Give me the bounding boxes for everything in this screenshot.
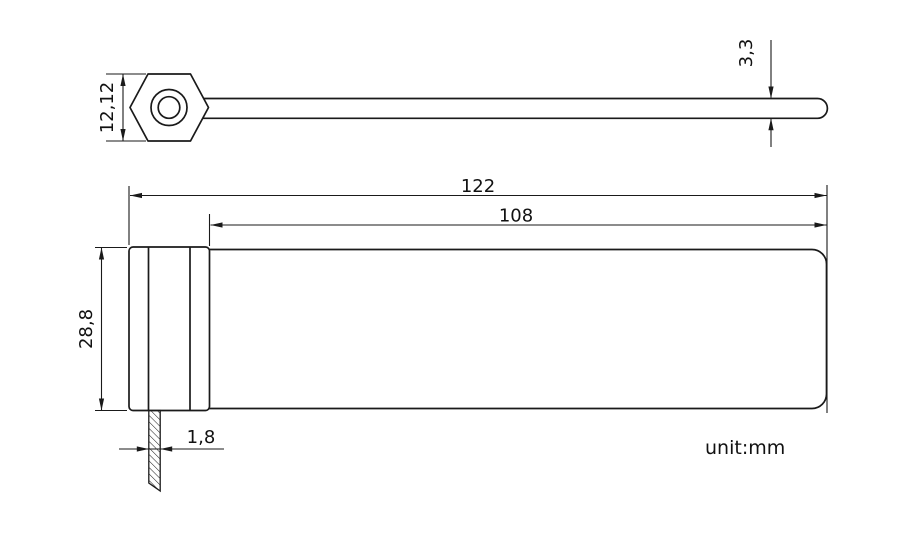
dim-strap-length: 108 xyxy=(210,206,827,247)
arrowhead-up-icon xyxy=(120,74,125,86)
strap-profile xyxy=(203,99,827,119)
arrowhead-right-icon xyxy=(815,193,827,198)
arrowhead-down-icon xyxy=(768,87,773,99)
arrowhead-up-icon xyxy=(99,248,104,260)
technical-drawing-page: 12,12 3,3 xyxy=(0,0,912,544)
dim-value-head-height: 12,12 xyxy=(97,82,118,134)
arrowhead-right-icon xyxy=(815,222,827,227)
dim-overall-width: 28,8 xyxy=(76,248,127,411)
tail-hatched-section xyxy=(149,411,160,492)
strap-plan-body xyxy=(210,250,827,409)
arrowhead-up-icon xyxy=(768,118,773,130)
arrowhead-left-icon xyxy=(130,193,142,198)
arrowhead-left-icon xyxy=(160,446,172,451)
dim-value-overall-length: 122 xyxy=(461,176,495,197)
arrowhead-down-icon xyxy=(99,399,104,411)
seal-dimension-drawing: 12,12 3,3 xyxy=(0,0,912,544)
dim-value-strap-thickness: 3,3 xyxy=(736,39,757,68)
arrowhead-left-icon xyxy=(211,222,223,227)
dim-tail-width: 1,8 xyxy=(119,427,224,452)
seal-head-hexagon xyxy=(130,74,209,141)
unit-note: unit:mm xyxy=(705,437,785,459)
dim-value-tail-width: 1,8 xyxy=(187,427,216,448)
arrowhead-right-icon xyxy=(137,446,149,451)
dim-strap-thickness: 3,3 xyxy=(736,39,774,147)
side-view: 12,12 3,3 xyxy=(97,39,827,147)
dim-value-strap-length: 108 xyxy=(499,206,533,227)
arrowhead-down-icon xyxy=(120,129,125,141)
head-plan-body xyxy=(129,247,210,411)
dim-value-overall-width: 28,8 xyxy=(76,309,97,349)
dim-overall-length: 122 xyxy=(129,176,827,413)
